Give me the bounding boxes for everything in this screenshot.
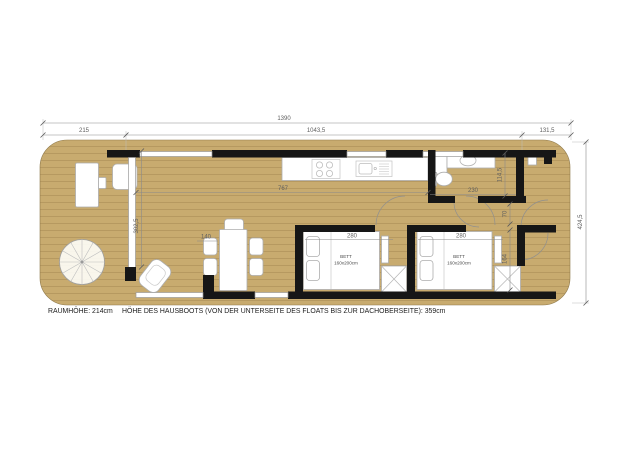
wall-bedroom2-top — [415, 225, 466, 232]
dim-main-section: 1043,5 — [307, 128, 326, 134]
wall-partition-cap — [125, 267, 136, 281]
floorplan-page: 1390 215 1043,5 131,5 424,5 — [0, 0, 636, 450]
dim-corridor: 70 — [503, 210, 509, 217]
dining-table — [220, 230, 248, 291]
bed-1-size: 160x200cm — [334, 261, 358, 266]
wall-top — [386, 150, 423, 158]
dim-bath-depth: 114,5 — [498, 167, 504, 182]
wall-bathroom-right — [516, 150, 524, 203]
terrace-railing-bottom — [136, 293, 203, 298]
dining-chair — [204, 238, 218, 255]
dim-living-length: 767 — [278, 186, 289, 192]
terrace-desk-chair — [99, 178, 107, 189]
wall-bedroom1-left — [295, 225, 303, 292]
wall-bedroom1-top — [295, 225, 375, 232]
living-window — [255, 293, 288, 298]
wall-bottom — [203, 292, 255, 300]
kitchen-counter — [282, 158, 428, 181]
wardrobe-1 — [382, 266, 407, 292]
wall-corridor-stub — [517, 225, 556, 233]
dim-total-length: 1390 — [277, 116, 291, 122]
wall-rear-stub — [544, 150, 552, 164]
dim-rear-section: 131,5 — [539, 128, 555, 134]
kitchen — [282, 158, 428, 181]
wall-bathroom-left — [428, 150, 436, 203]
bed-1-label: BETT — [340, 254, 352, 259]
pillow — [420, 261, 433, 281]
terrace-railing — [140, 152, 212, 157]
bed-2-label: BETT — [453, 254, 465, 259]
dining-chair — [250, 259, 264, 276]
dim-bath-width: 230 — [468, 188, 479, 194]
wall-terrace-windbreak — [107, 150, 140, 158]
nightstand — [495, 236, 502, 263]
glass-front-partition — [129, 158, 136, 268]
floorplan-drawing: 1390 215 1043,5 131,5 424,5 — [0, 0, 636, 450]
nightstand — [382, 236, 389, 263]
pillow — [307, 261, 320, 281]
utility-column — [528, 157, 537, 166]
wall-stub — [203, 275, 214, 292]
boat-height-note: HÖHE DES HAUSBOOTS (VON DER UNTERSEITE D… — [122, 307, 446, 315]
wall-bedroom-divider — [407, 225, 415, 292]
dim-table: 140 — [201, 235, 212, 241]
terrace-desk — [76, 163, 99, 207]
dim-bedroom1: 280 — [347, 234, 358, 240]
wall-bottom — [288, 292, 556, 300]
dim-bedroom2: 280 — [456, 234, 467, 240]
spiral-staircase — [60, 240, 105, 285]
kitchen-window — [347, 152, 386, 157]
dim-closet: 164 — [503, 253, 509, 264]
dim-glass-front: 302,5 — [134, 218, 140, 234]
wall-top — [463, 150, 556, 158]
wall-top — [212, 150, 347, 158]
dim-total-width: 424,5 — [578, 214, 584, 230]
bed-2-size: 160x200cm — [447, 261, 471, 266]
footer-notes: RAUMHÖHE: 214cm HÖHE DES HAUSBOOTS (VON … — [48, 307, 446, 315]
dining-chair — [250, 238, 264, 255]
room-height-note: RAUMHÖHE: 214cm — [48, 307, 113, 315]
dimension-line-right: 424,5 — [572, 140, 589, 306]
wall-bathroom-bottom — [428, 196, 455, 203]
wardrobe-2 — [495, 266, 521, 292]
dim-front-terrace: 215 — [79, 128, 90, 134]
dining-chair — [204, 259, 218, 276]
